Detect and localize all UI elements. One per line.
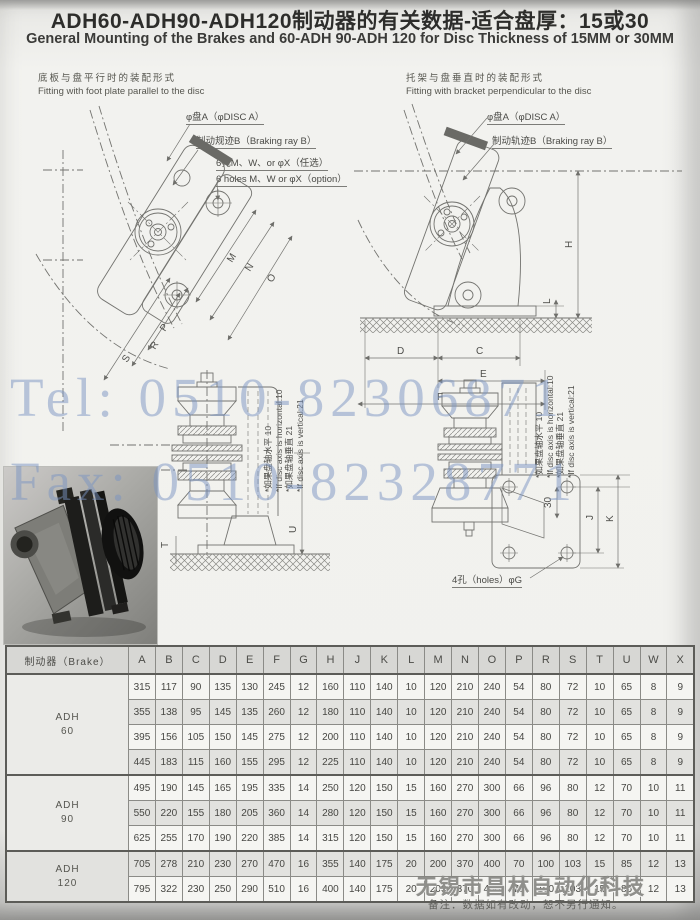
table-cell: 445 xyxy=(129,750,156,776)
column-header-C: C xyxy=(182,646,209,674)
table-cell: 250 xyxy=(317,775,344,801)
table-cell: 140 xyxy=(344,851,371,877)
table-cell: 80 xyxy=(559,801,586,826)
dim-label-u: U xyxy=(288,526,299,533)
table-cell: 155 xyxy=(182,801,209,826)
table-cell: 16 xyxy=(290,851,317,877)
table-cell: 13 xyxy=(667,877,694,903)
dim-label-o: O xyxy=(265,272,279,285)
table-cell: 145 xyxy=(209,700,236,725)
column-header-A: A xyxy=(129,646,156,674)
table-cell: 270 xyxy=(452,826,479,852)
ground-hatch xyxy=(170,554,330,571)
table-cell: 230 xyxy=(182,877,209,903)
table-cell: 54 xyxy=(505,725,532,750)
table-cell: 170 xyxy=(182,826,209,852)
table-cell: 14 xyxy=(290,775,317,801)
table-cell: 110 xyxy=(344,750,371,776)
table-cell: 8 xyxy=(640,674,667,700)
table-cell: 10 xyxy=(640,826,667,852)
column-header-T: T xyxy=(586,646,613,674)
table-cell: 315 xyxy=(317,826,344,852)
table-cell: 8 xyxy=(640,750,667,776)
table-cell: 120 xyxy=(344,775,371,801)
table-cell: 15 xyxy=(398,775,425,801)
column-header-J: J xyxy=(344,646,371,674)
table-cell: 96 xyxy=(532,826,559,852)
table-cell: 120 xyxy=(425,700,452,725)
table-cell: 160 xyxy=(425,826,452,852)
left-caption-cn: 底板与盘平行时的装配形式 xyxy=(38,73,204,86)
table-cell: 65 xyxy=(613,750,640,776)
dim-label-c: C xyxy=(476,346,483,357)
dim-label-r: R xyxy=(148,340,161,352)
table-cell: 322 xyxy=(155,877,182,903)
table-cell: 135 xyxy=(209,674,236,700)
table-cell: 70 xyxy=(613,801,640,826)
table-cell: 80 xyxy=(559,775,586,801)
table-cell: 180 xyxy=(317,700,344,725)
column-header-G: G xyxy=(290,646,317,674)
mount-hole xyxy=(499,188,525,214)
column-header-S: S xyxy=(559,646,586,674)
table-cell: 115 xyxy=(182,750,209,776)
table-cell: 72 xyxy=(559,750,586,776)
leader-holes xyxy=(217,182,218,200)
table-cell: 66 xyxy=(505,801,532,826)
table-cell: 180 xyxy=(209,801,236,826)
table-cell: 140 xyxy=(371,725,398,750)
table-cell: 315 xyxy=(129,674,156,700)
brake-assembly-on-stand xyxy=(360,127,592,333)
table-cell: 190 xyxy=(209,826,236,852)
table-cell: 150 xyxy=(371,826,398,852)
table-cell: 385 xyxy=(263,826,290,852)
table-cell: 360 xyxy=(263,801,290,826)
table-cell: 12 xyxy=(586,826,613,852)
table-cell: 250 xyxy=(209,877,236,903)
datasheet-page: ADH60-ADH90-ADH120制动器的有关数据-适合盘厚：15或30 Ge… xyxy=(0,0,700,920)
table-cell: 220 xyxy=(236,826,263,852)
brake-group-120: ADH120 xyxy=(6,851,129,902)
right-diagram-bracket: D C E F H L J K 30 xyxy=(352,88,698,608)
table-cell: 10 xyxy=(398,700,425,725)
table-cell: 145 xyxy=(236,725,263,750)
table-cell: 12 xyxy=(290,750,317,776)
dim-label-m: M xyxy=(225,252,239,265)
table-cell: 395 xyxy=(129,725,156,750)
table-cell: 15 xyxy=(398,826,425,852)
dim-label-k: K xyxy=(605,515,616,522)
table-cell: 120 xyxy=(425,674,452,700)
table-cell: 54 xyxy=(505,750,532,776)
table-cell: 335 xyxy=(263,775,290,801)
table-cell: 240 xyxy=(478,725,505,750)
table-cell: 140 xyxy=(371,700,398,725)
table-cell: 80 xyxy=(532,725,559,750)
dim-label-n: N xyxy=(243,262,256,274)
column-header-R: R xyxy=(532,646,559,674)
table-cell: 210 xyxy=(452,674,479,700)
mount-hole xyxy=(455,282,481,308)
table-cell: 135 xyxy=(236,700,263,725)
table-cell: 70 xyxy=(613,826,640,852)
table-cell: 10 xyxy=(586,674,613,700)
table-cell: 9 xyxy=(667,750,694,776)
table-cell: 160 xyxy=(209,750,236,776)
column-header-D: D xyxy=(209,646,236,674)
column-header-K: K xyxy=(371,646,398,674)
table-cell: 270 xyxy=(452,775,479,801)
table-cell: 72 xyxy=(559,725,586,750)
table-cell: 70 xyxy=(613,775,640,801)
table-cell: 8 xyxy=(640,725,667,750)
table-cell: 80 xyxy=(559,826,586,852)
table-cell: 120 xyxy=(425,725,452,750)
table-cell: 11 xyxy=(667,775,694,801)
column-header-X: X xyxy=(667,646,694,674)
table-cell: 705 xyxy=(129,851,156,877)
table-cell: 95 xyxy=(182,700,209,725)
table-cell: 155 xyxy=(236,750,263,776)
column-header-H: H xyxy=(317,646,344,674)
table-cell: 10 xyxy=(640,775,667,801)
disc-edge-arc xyxy=(90,110,174,328)
table-cell: 120 xyxy=(344,826,371,852)
table-cell: 12 xyxy=(586,775,613,801)
table-cell: 225 xyxy=(317,750,344,776)
brake-column-header: 制动器（Brake） xyxy=(6,646,129,674)
table-cell: 65 xyxy=(613,700,640,725)
table-cell: 190 xyxy=(155,775,182,801)
table-cell: 16 xyxy=(290,877,317,903)
column-header-P: P xyxy=(505,646,532,674)
brake-group-60: ADH60 xyxy=(6,674,129,775)
table-cell: 65 xyxy=(613,725,640,750)
table-cell: 183 xyxy=(155,750,182,776)
dim-label-t: T xyxy=(160,542,171,548)
table-cell: 240 xyxy=(478,674,505,700)
table-cell: 210 xyxy=(452,725,479,750)
table-cell: 105 xyxy=(182,725,209,750)
table-cell: 210 xyxy=(452,750,479,776)
table-cell: 130 xyxy=(236,674,263,700)
table-cell: 11 xyxy=(667,826,694,852)
tel-watermark: Tel: 0510-82306871 xyxy=(10,366,565,429)
table-cell: 255 xyxy=(155,826,182,852)
leader-braking-ray xyxy=(173,150,198,185)
table-cell: 495 xyxy=(129,775,156,801)
column-header-O: O xyxy=(478,646,505,674)
table-cell: 300 xyxy=(478,826,505,852)
table-cell: 12 xyxy=(290,674,317,700)
table-cell: 66 xyxy=(505,826,532,852)
table-cell: 300 xyxy=(478,775,505,801)
page-subtitle: General Mounting of the Brakes and 60-AD… xyxy=(0,31,700,47)
table-cell: 280 xyxy=(317,801,344,826)
table-cell: 120 xyxy=(425,750,452,776)
leader-4-holes xyxy=(530,557,563,578)
table-cell: 150 xyxy=(371,801,398,826)
table-cell: 13 xyxy=(667,851,694,877)
dim-label-l: L xyxy=(542,298,553,304)
leader-braking-ray xyxy=(463,144,494,180)
table-cell: 138 xyxy=(155,700,182,725)
table-cell: 550 xyxy=(129,801,156,826)
table-cell: 160 xyxy=(425,775,452,801)
dim-label-d: D xyxy=(397,346,404,357)
table-cell: 160 xyxy=(317,674,344,700)
table-cell: 200 xyxy=(317,725,344,750)
column-header-U: U xyxy=(613,646,640,674)
fax-watermark: Fax: 0510-82328771 xyxy=(10,450,578,513)
column-header-W: W xyxy=(640,646,667,674)
table-cell: 150 xyxy=(209,725,236,750)
table-cell: 96 xyxy=(532,801,559,826)
dim-label-j: J xyxy=(585,515,596,520)
table-cell: 270 xyxy=(236,851,263,877)
table-cell: 80 xyxy=(532,674,559,700)
table-cell: 230 xyxy=(209,851,236,877)
table-cell: 290 xyxy=(236,877,263,903)
footer-note: 备注：数据如有改动，恕不另行通知。 xyxy=(428,897,624,912)
table-cell: 9 xyxy=(667,674,694,700)
table-cell: 15 xyxy=(398,801,425,826)
table-cell: 355 xyxy=(129,700,156,725)
table-cell: 10 xyxy=(398,674,425,700)
table-cell: 10 xyxy=(398,725,425,750)
table-cell: 300 xyxy=(478,801,505,826)
table-cell: 66 xyxy=(505,775,532,801)
table-cell: 10 xyxy=(586,700,613,725)
table-cell: 270 xyxy=(452,801,479,826)
table-cell: 117 xyxy=(155,674,182,700)
table-cell: 275 xyxy=(263,725,290,750)
table-cell: 54 xyxy=(505,674,532,700)
table-cell: 8 xyxy=(640,700,667,725)
table-cell: 245 xyxy=(263,674,290,700)
table-cell: 175 xyxy=(371,851,398,877)
brake-group-90: ADH90 xyxy=(6,775,129,851)
table-cell: 205 xyxy=(236,801,263,826)
table-cell: 795 xyxy=(129,877,156,903)
table-cell: 10 xyxy=(398,750,425,776)
table-cell: 260 xyxy=(263,700,290,725)
table-row: ADH6031511790135130245121601101401012021… xyxy=(6,674,694,700)
column-header-N: N xyxy=(452,646,479,674)
column-header-L: L xyxy=(398,646,425,674)
table-row: ADH9049519014516519533514250120150151602… xyxy=(6,775,694,801)
table-cell: 65 xyxy=(613,674,640,700)
table-cell: 12 xyxy=(586,801,613,826)
table-cell: 14 xyxy=(290,826,317,852)
table-cell: 210 xyxy=(182,851,209,877)
table-cell: 80 xyxy=(532,700,559,725)
table-cell: 72 xyxy=(559,700,586,725)
dim-label-s: S xyxy=(120,353,133,365)
brake-pad-bar xyxy=(444,127,488,151)
table-cell: 145 xyxy=(182,775,209,801)
table-cell: 240 xyxy=(478,700,505,725)
right-caption-cn: 托架与盘垂直时的装配形式 xyxy=(406,73,591,86)
four-holes-label: 4孔（holes）φG xyxy=(452,572,522,588)
table-cell: 12 xyxy=(290,725,317,750)
table-cell: 90 xyxy=(182,674,209,700)
table-cell: 54 xyxy=(505,700,532,725)
table-cell: 120 xyxy=(344,801,371,826)
spec-table: 制动器（Brake）ABCDEFGHJKLMNOPRSTUWX ADH60315… xyxy=(5,645,695,903)
table-cell: 140 xyxy=(371,674,398,700)
table-cell: 10 xyxy=(586,750,613,776)
table-cell: 160 xyxy=(425,801,452,826)
dim-label-h: H xyxy=(564,241,575,248)
table-cell: 510 xyxy=(263,877,290,903)
table-cell: 220 xyxy=(155,801,182,826)
spec-table-body: ADH6031511790135130245121601101401012021… xyxy=(6,674,694,902)
column-header-B: B xyxy=(155,646,182,674)
table-cell: 400 xyxy=(317,877,344,903)
table-cell: 96 xyxy=(532,775,559,801)
disc-edge-arc xyxy=(412,104,470,253)
column-header-F: F xyxy=(263,646,290,674)
table-cell: 72 xyxy=(559,674,586,700)
table-cell: 470 xyxy=(263,851,290,877)
table-cell: 165 xyxy=(209,775,236,801)
table-cell: 140 xyxy=(344,877,371,903)
table-cell: 10 xyxy=(640,801,667,826)
table-cell: 12 xyxy=(290,700,317,725)
table-cell: 355 xyxy=(317,851,344,877)
table-cell: 295 xyxy=(263,750,290,776)
table-cell: 278 xyxy=(155,851,182,877)
table-cell: 110 xyxy=(344,725,371,750)
table-cell: 11 xyxy=(667,801,694,826)
table-cell: 240 xyxy=(478,750,505,776)
column-header-M: M xyxy=(425,646,452,674)
spec-table-header-row: 制动器（Brake）ABCDEFGHJKLMNOPRSTUWX xyxy=(6,646,694,674)
table-cell: 156 xyxy=(155,725,182,750)
table-cell: 10 xyxy=(586,725,613,750)
table-cell: 9 xyxy=(667,700,694,725)
table-cell: 14 xyxy=(290,801,317,826)
table-cell: 110 xyxy=(344,674,371,700)
table-cell: 210 xyxy=(452,700,479,725)
brake-assembly-tilted xyxy=(94,134,255,326)
table-cell: 195 xyxy=(236,775,263,801)
table-cell: 150 xyxy=(371,775,398,801)
table-cell: 80 xyxy=(532,750,559,776)
table-cell: 9 xyxy=(667,725,694,750)
table-cell: 140 xyxy=(371,750,398,776)
table-cell: 110 xyxy=(344,700,371,725)
table-cell: 175 xyxy=(371,877,398,903)
ground-hatch xyxy=(360,318,592,333)
table-cell: 625 xyxy=(129,826,156,852)
column-header-E: E xyxy=(236,646,263,674)
brake-pad-bar xyxy=(189,134,233,166)
leader-disc-a xyxy=(167,124,190,161)
